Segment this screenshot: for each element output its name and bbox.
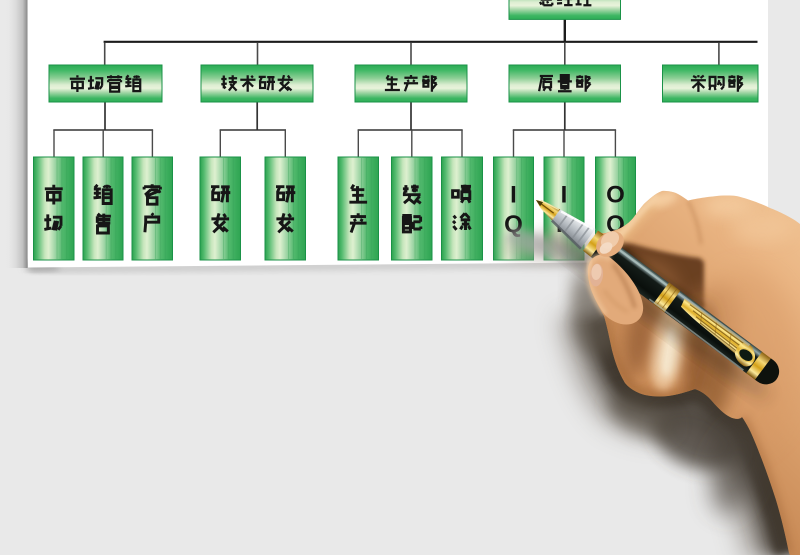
- svg-text:I: I: [561, 182, 568, 209]
- svg-text:O: O: [606, 182, 625, 209]
- svg-text:I: I: [510, 182, 517, 209]
